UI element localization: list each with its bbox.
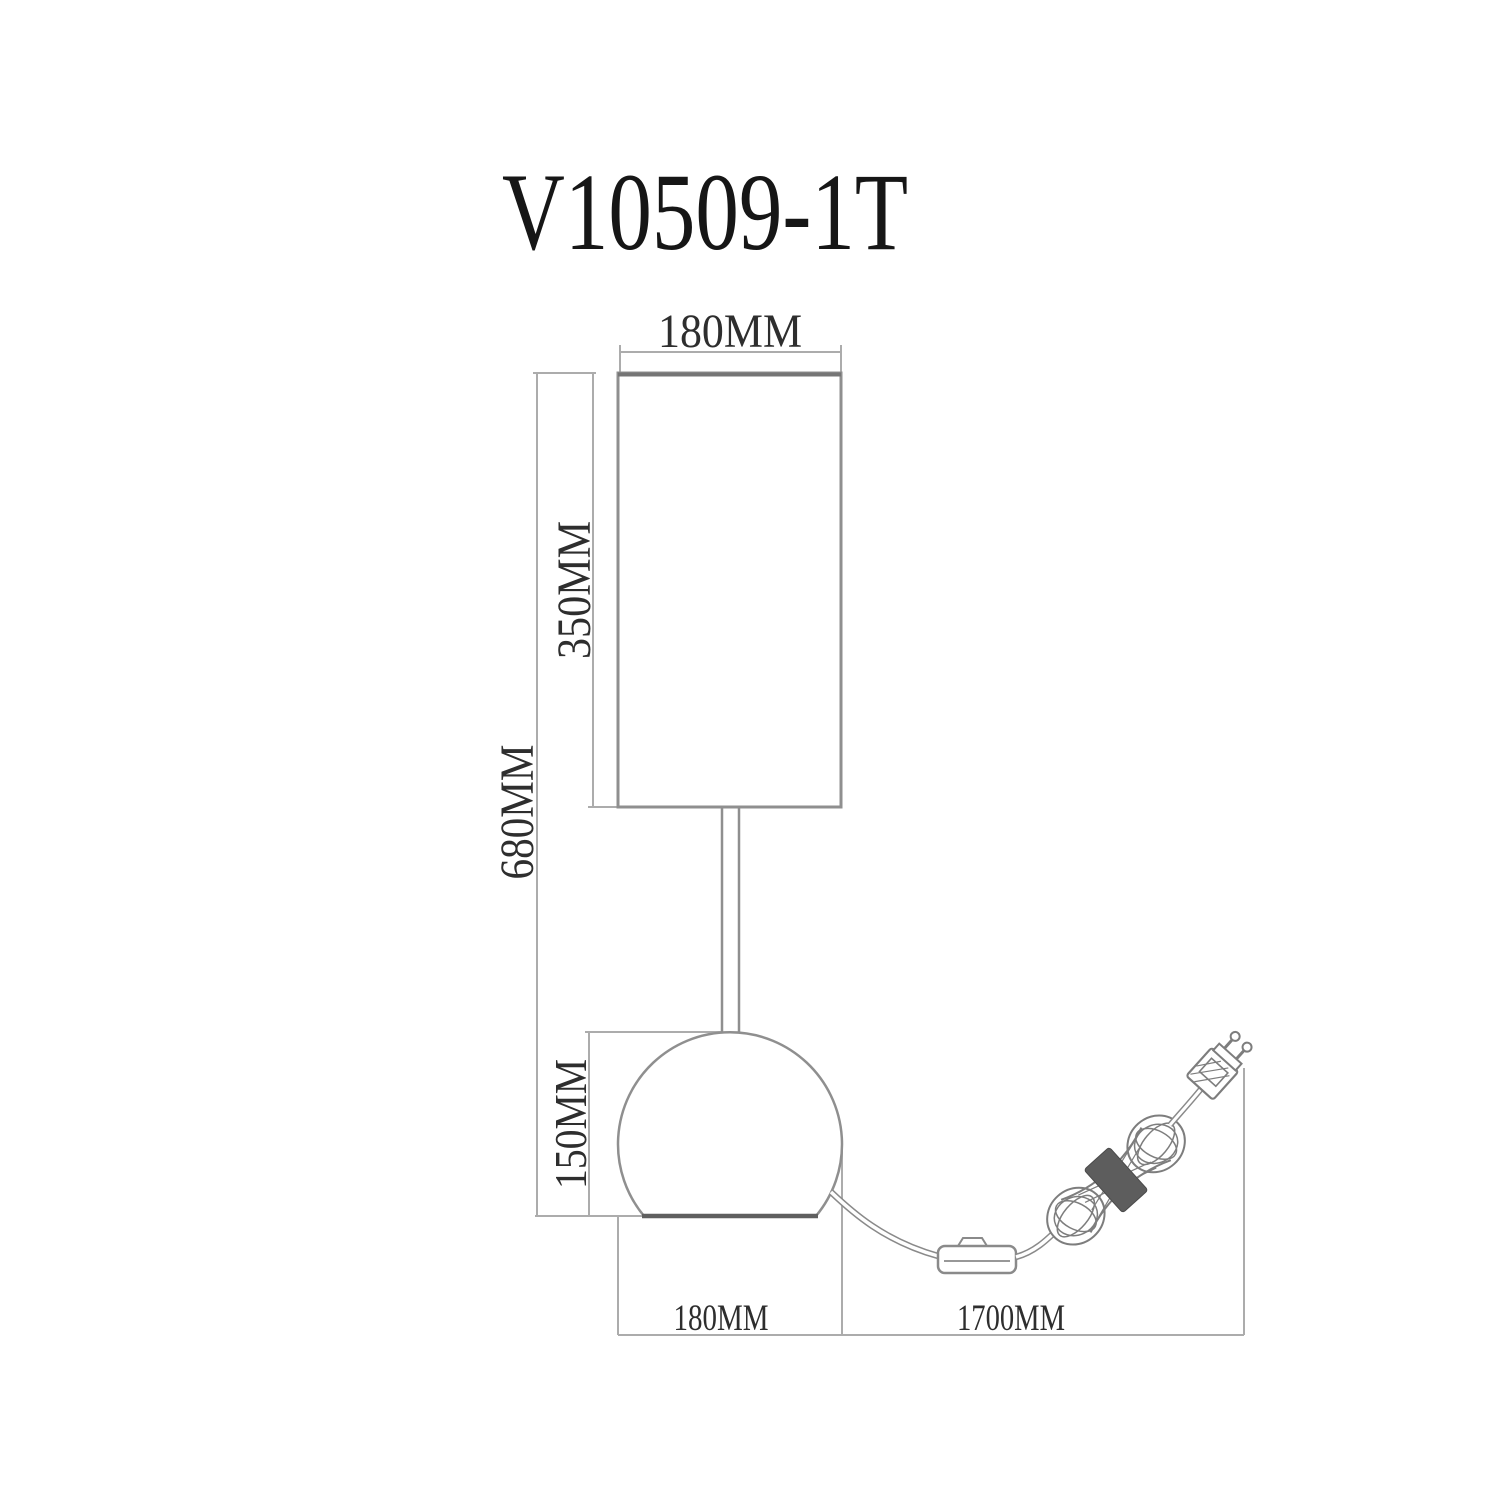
dim-shade-width-label: 180MM — [658, 305, 802, 358]
dim-total-height-label: 680MM — [491, 745, 544, 880]
dim-shade-height-label: 350MM — [548, 521, 601, 659]
base-sphere — [618, 1032, 842, 1216]
power-cord — [831, 1192, 938, 1256]
lamp-outline — [618, 373, 842, 1216]
dim-base-width-label: 180MM — [674, 1298, 769, 1339]
drawing-canvas: V10509-1T 180MM 350MM 680MM 150MM 180MM … — [0, 0, 1500, 1500]
inline-switch — [938, 1246, 1016, 1273]
product-code-title: V10509-1T — [502, 151, 908, 273]
lamp-technical-diagram: V10509-1T 180MM 350MM 680MM 150MM 180MM … — [0, 0, 1500, 1500]
stem — [722, 808, 739, 1034]
dim-cord-length-label: 1700MM — [957, 1298, 1065, 1339]
cord-to-plug-core — [1170, 1089, 1201, 1125]
power-cord-core — [831, 1192, 938, 1256]
power-plug — [1186, 1026, 1257, 1100]
dim-base-height-label: 150MM — [545, 1059, 596, 1189]
power-cord-assembly — [831, 1026, 1257, 1273]
lampshade — [618, 373, 841, 807]
